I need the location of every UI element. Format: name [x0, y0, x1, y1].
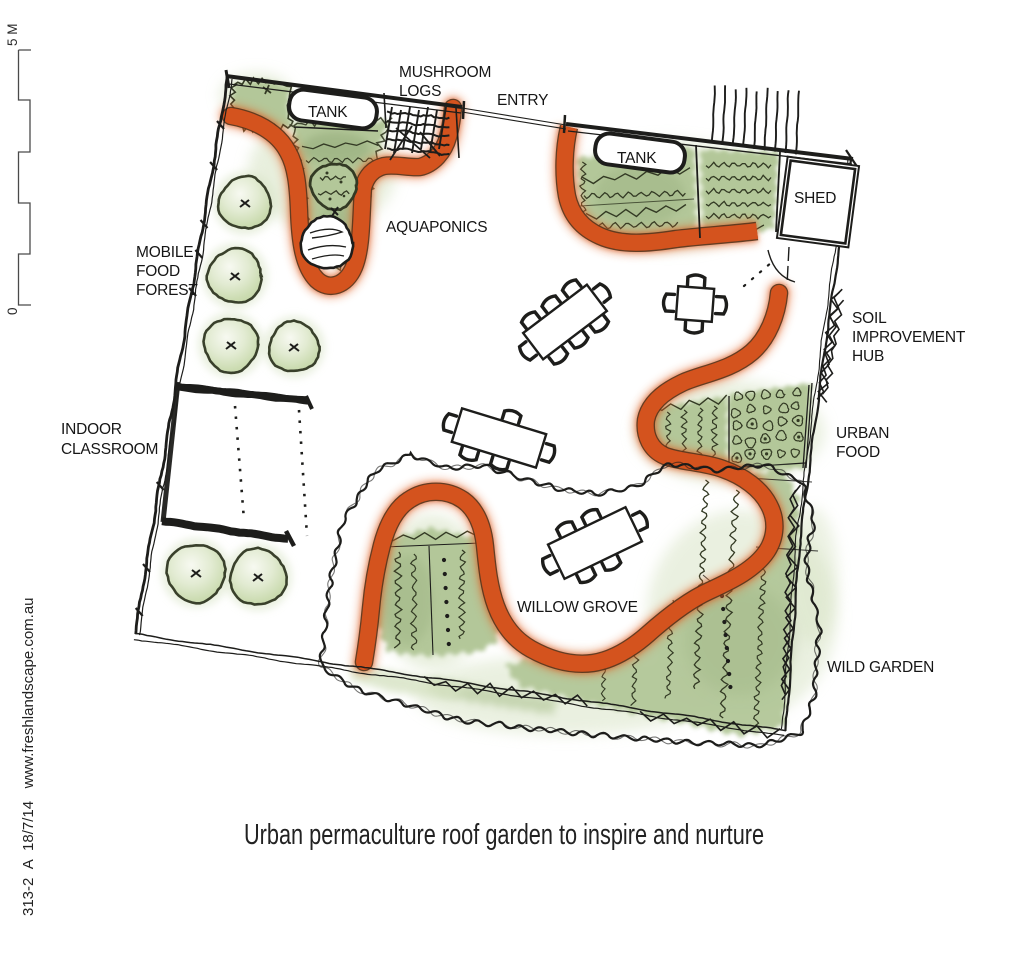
- svg-text:FOOD: FOOD: [836, 444, 880, 461]
- svg-text:MUSHROOM: MUSHROOM: [399, 64, 491, 81]
- svg-text:0: 0: [5, 307, 20, 315]
- svg-text:WILD GARDEN: WILD GARDEN: [827, 659, 934, 676]
- svg-text:FOOD: FOOD: [136, 263, 180, 280]
- svg-text:MOBILE: MOBILE: [136, 244, 193, 261]
- svg-text:CLASSROOM: CLASSROOM: [61, 441, 158, 458]
- svg-text:TANK: TANK: [617, 150, 657, 167]
- svg-text:ENTRY: ENTRY: [497, 92, 548, 109]
- svg-text:INDOOR: INDOOR: [61, 421, 122, 438]
- svg-text:FOREST: FOREST: [136, 282, 198, 299]
- svg-text:LOGS: LOGS: [399, 83, 441, 100]
- svg-text:IMPROVEMENT: IMPROVEMENT: [852, 329, 966, 346]
- svg-text:SHED: SHED: [794, 190, 836, 207]
- svg-text:SOIL: SOIL: [852, 310, 887, 327]
- svg-text:WILLOW GROVE: WILLOW GROVE: [517, 599, 638, 616]
- svg-text:URBAN: URBAN: [836, 425, 889, 442]
- svg-text:TANK: TANK: [308, 104, 348, 121]
- svg-text:AQUAPONICS: AQUAPONICS: [386, 219, 487, 236]
- svg-text:5 M: 5 M: [5, 23, 20, 46]
- svg-text:313-2 A 18/7/14 www.freshl: 313-2 A 18/7/14 www.freshlandscape.com.a…: [20, 597, 37, 916]
- svg-text:HUB: HUB: [852, 348, 884, 365]
- svg-text:Urban permaculture roof garden: Urban permaculture roof garden to inspir…: [244, 819, 764, 851]
